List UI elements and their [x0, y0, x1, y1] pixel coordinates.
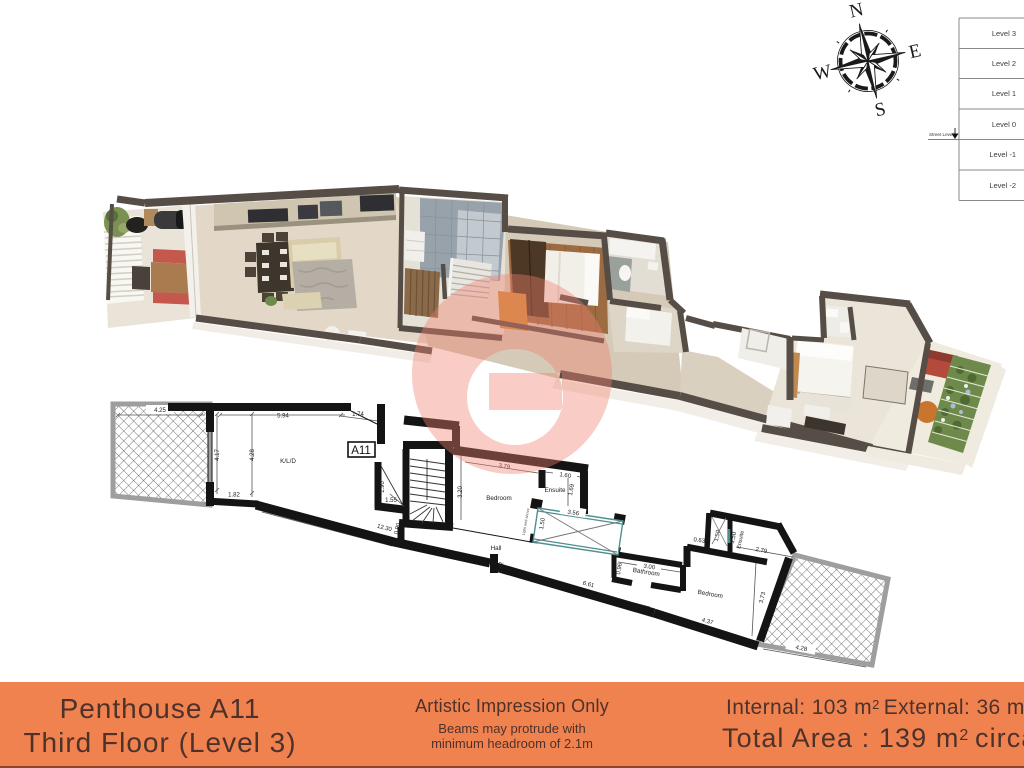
svg-text:Level 0: Level 0	[992, 120, 1016, 129]
svg-text:1.69: 1.69	[568, 483, 576, 496]
svg-text:1.90: 1.90	[380, 481, 386, 493]
svg-text:Bedroom: Bedroom	[486, 495, 512, 502]
svg-text:1.74: 1.74	[352, 412, 364, 418]
svg-text:1.55: 1.55	[385, 498, 397, 504]
svg-text:2.79: 2.79	[755, 547, 768, 555]
svg-text:4.25: 4.25	[154, 408, 166, 414]
svg-text:3.20: 3.20	[458, 486, 464, 498]
svg-text:S: S	[873, 99, 888, 122]
svg-text:Hall: Hall	[491, 545, 502, 552]
svg-text:4.28: 4.28	[250, 449, 256, 461]
svg-text:4.17: 4.17	[215, 449, 221, 461]
svg-text:Level 2: Level 2	[992, 59, 1016, 68]
svg-text:5.94: 5.94	[277, 414, 289, 420]
svg-text:K/L/D: K/L/D	[280, 458, 296, 465]
svg-text:Ensuite: Ensuite	[544, 487, 566, 494]
svg-text:Bedroom: Bedroom	[697, 589, 723, 600]
svg-text:Level 3: Level 3	[992, 29, 1016, 38]
svg-text:Street Level: Street Level	[929, 132, 954, 137]
svg-text:Level -1: Level -1	[989, 150, 1016, 159]
svg-text:Level 1: Level 1	[992, 89, 1016, 98]
svg-text:A11: A11	[351, 445, 371, 457]
svg-text:Level -2: Level -2	[989, 181, 1016, 190]
svg-text:1.82: 1.82	[228, 493, 240, 499]
svg-text:0.96: 0.96	[616, 562, 624, 575]
svg-text:1.60: 1.60	[559, 472, 572, 480]
svg-text:3.73: 3.73	[759, 591, 768, 604]
svg-text:1.50: 1.50	[714, 529, 722, 542]
svg-text:Light well above: Light well above	[522, 508, 531, 536]
svg-text:0.63: 0.63	[693, 537, 706, 545]
svg-text:12.30: 12.30	[376, 524, 393, 534]
svg-text:E: E	[907, 40, 923, 63]
svg-text:W: W	[811, 61, 833, 86]
svg-text:N: N	[847, 0, 865, 23]
